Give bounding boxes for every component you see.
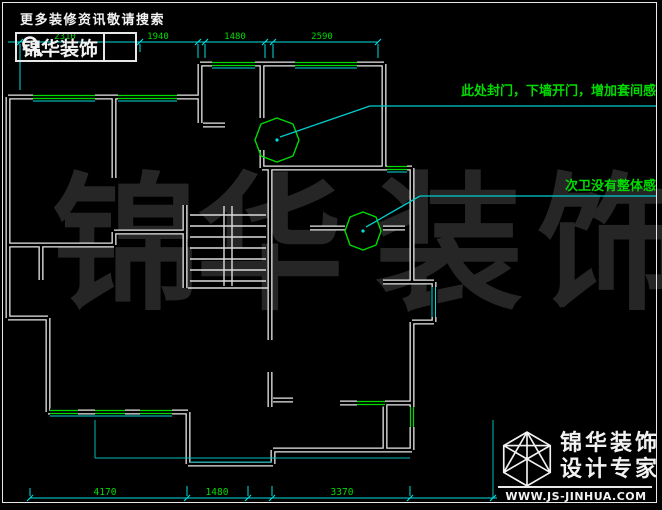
- brand-search-box: 锦华装饰: [15, 32, 137, 62]
- staircase: [188, 206, 268, 288]
- revision-cloud-2: [345, 212, 381, 250]
- header-slogan: 更多装修资讯敬请搜索: [20, 9, 165, 28]
- dim-top-3: 1480: [224, 32, 246, 42]
- cube-logo-icon: [496, 428, 558, 490]
- dim-top-4: 2590: [311, 32, 333, 42]
- footer-divider: [498, 486, 652, 488]
- stair-treads: [188, 206, 268, 288]
- footer-website: WWW.JS-JINHUA.COM: [494, 490, 658, 503]
- footer-brand-line1: 锦华装饰: [560, 430, 660, 456]
- bottom-dimension: 4170 1480 3370: [27, 486, 497, 501]
- footer-brand-line2: 设计专家: [560, 456, 660, 482]
- search-icon: [105, 34, 135, 60]
- dim-top-2: 1940: [147, 32, 169, 42]
- dim-bottom-3: 3370: [331, 487, 354, 498]
- dim-bottom-1: 4170: [94, 487, 117, 498]
- window-sill-lines: [33, 68, 436, 416]
- annotation-bathroom: 次卫没有整体感: [565, 178, 656, 194]
- footer-logo: 锦华装饰 设计专家 WWW.JS-JINHUA.COM: [494, 428, 658, 504]
- dim-bottom-2: 1480: [206, 487, 229, 498]
- cyan-guide-lines: [95, 420, 493, 498]
- annotation-seal-door: 此处封门，下墙开门，增加套间感: [461, 83, 656, 99]
- cloud-2-center-dot: [361, 229, 364, 232]
- cloud-1-center-dot: [275, 138, 278, 141]
- floorplan-canvas: 锦 华 装 饰: [0, 0, 662, 510]
